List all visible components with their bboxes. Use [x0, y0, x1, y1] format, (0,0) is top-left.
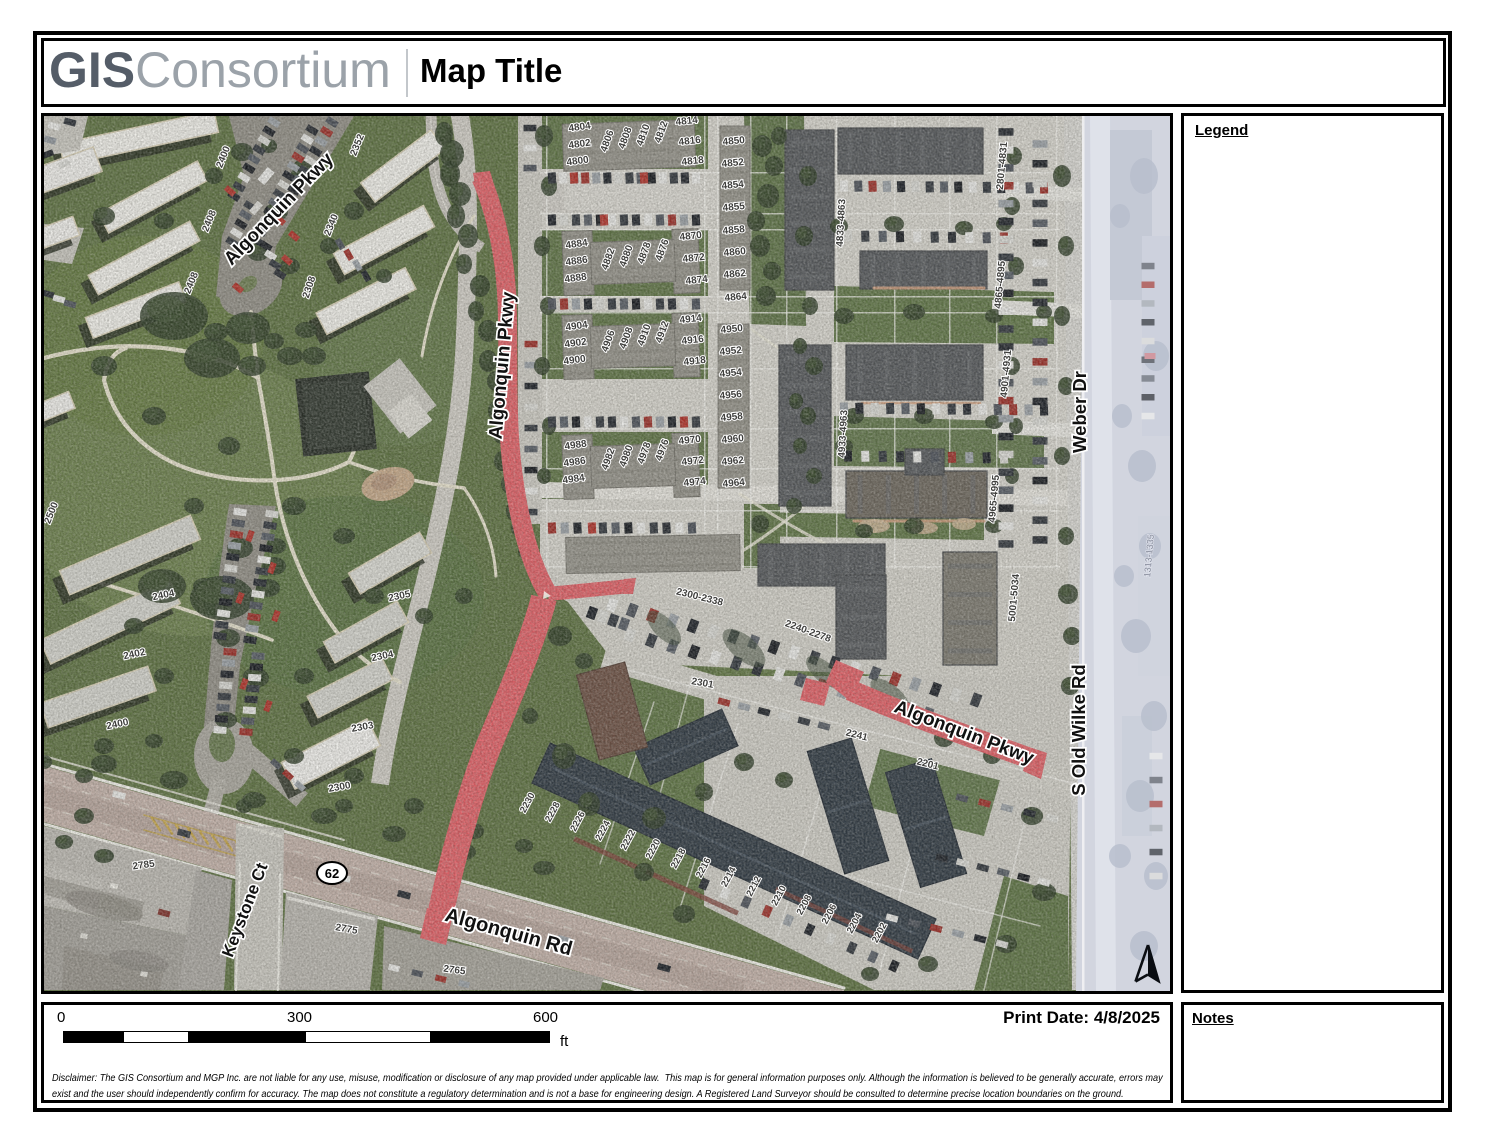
svg-text:4854: 4854 — [721, 179, 745, 192]
svg-text:4864: 4864 — [724, 291, 748, 304]
svg-text:4862: 4862 — [723, 268, 747, 281]
svg-text:4860: 4860 — [723, 246, 747, 259]
svg-text:4956: 4956 — [719, 389, 743, 402]
svg-text:S Old Wilke Rd: S Old Wilke Rd — [1068, 664, 1089, 795]
svg-text:4958: 4958 — [720, 411, 744, 424]
svg-text:4858: 4858 — [722, 224, 746, 237]
svg-text:4952: 4952 — [719, 345, 743, 358]
svg-text:4855: 4855 — [722, 201, 746, 214]
svg-text:62: 62 — [325, 866, 339, 881]
svg-text:4950: 4950 — [720, 323, 744, 336]
svg-text:4850: 4850 — [722, 135, 746, 148]
svg-text:4954: 4954 — [719, 367, 743, 380]
svg-text:4852: 4852 — [721, 157, 745, 170]
svg-text:4962: 4962 — [721, 455, 745, 468]
svg-text:Weber Dr: Weber Dr — [1069, 371, 1090, 453]
svg-text:4964: 4964 — [722, 477, 746, 490]
svg-text:4960: 4960 — [721, 433, 745, 446]
